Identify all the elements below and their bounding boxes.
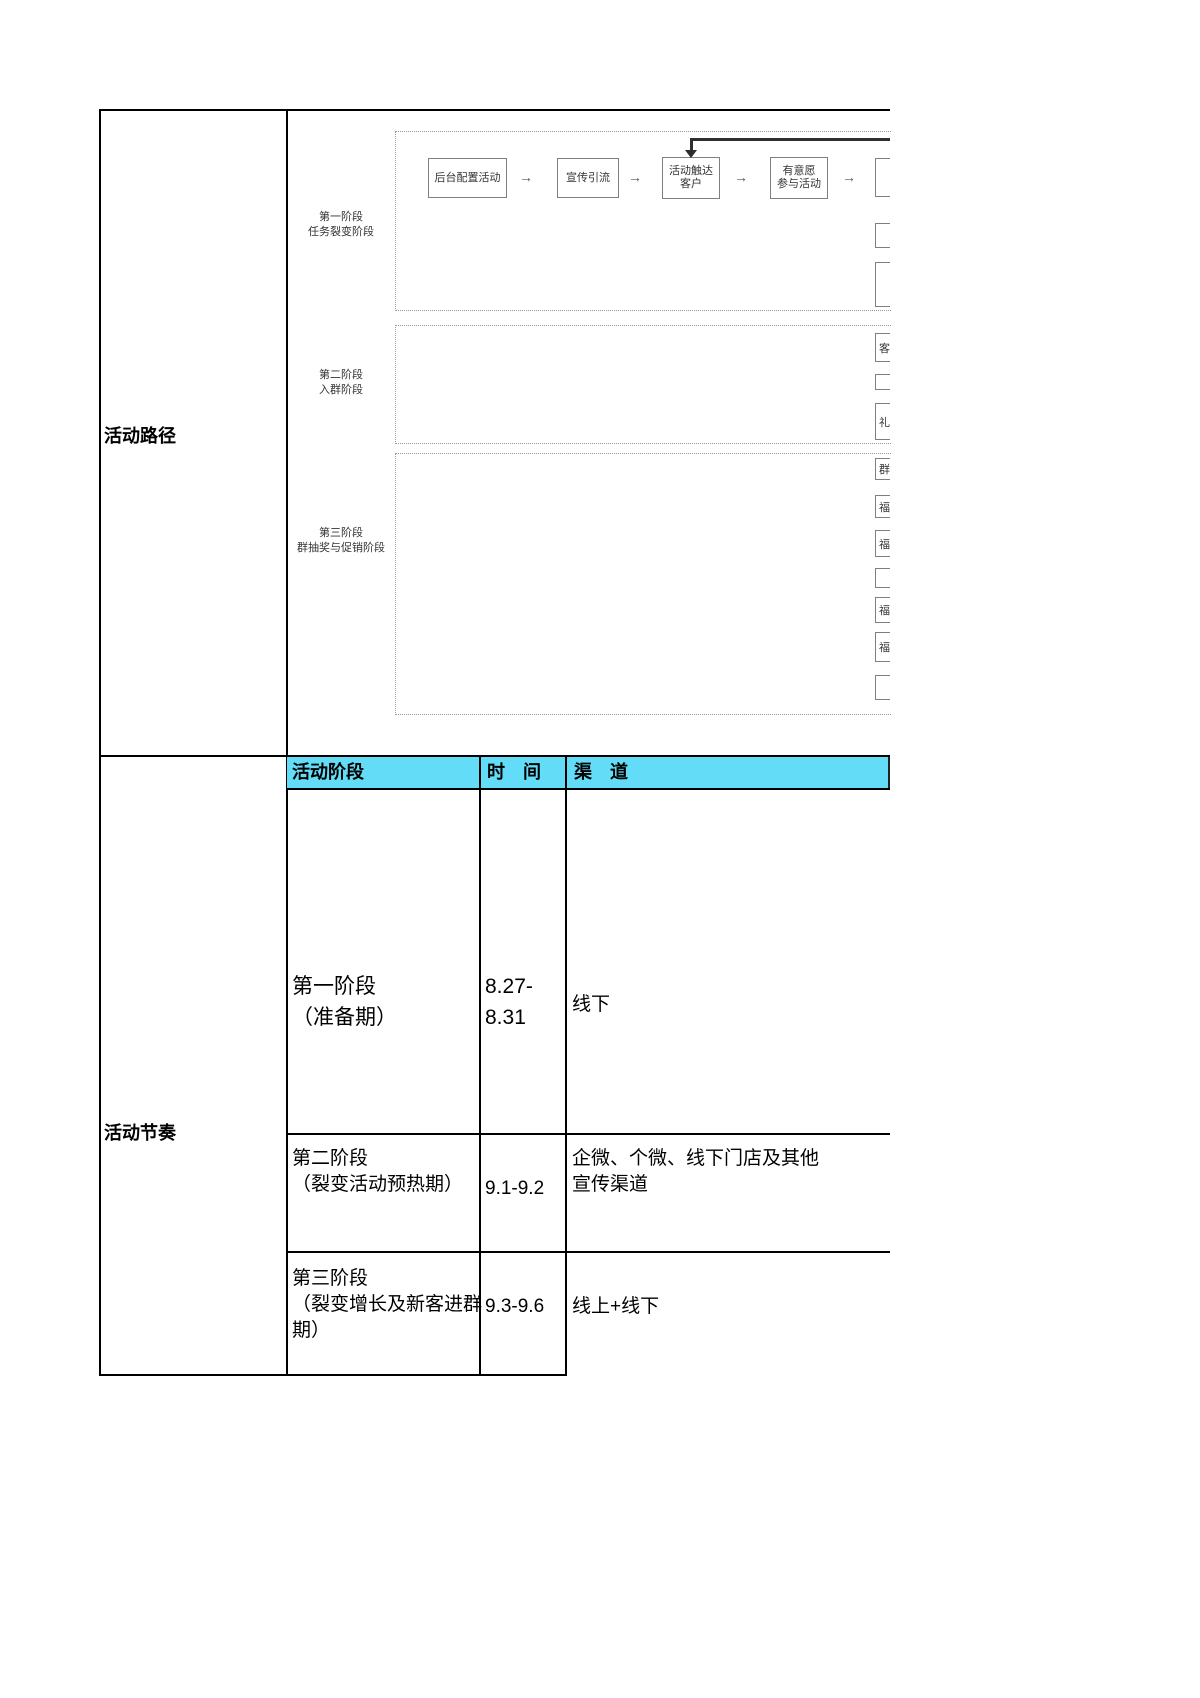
header-cell-channel: 渠 道 <box>574 757 628 788</box>
row1-stage-cell: 第一阶段 （准备期） <box>292 971 397 1033</box>
row2-channel-cell: 企微、个微、线下门店及其他 宣传渠道 <box>572 1146 819 1198</box>
partial-box <box>875 675 890 700</box>
flow-arrow-icon: → <box>734 170 748 184</box>
flow-box-promotion: 宣传引流 <box>557 158 619 198</box>
header-bottom-border <box>287 788 890 790</box>
table-top-border <box>99 109 890 111</box>
table-left-border <box>99 109 101 1376</box>
flow-arrow-icon: → <box>842 170 856 184</box>
row3-stage-cell: 第三阶段 （裂变增长及新客进群 期） <box>292 1266 482 1344</box>
flow-arrow-icon: → <box>628 170 642 184</box>
row2-bottom-border <box>287 1251 890 1253</box>
partial-box: 群 <box>875 458 890 480</box>
row3-channel-cell: 线上+线下 <box>572 1294 659 1320</box>
row2-stage-cell: 第二阶段 （裂变活动预热期） <box>292 1146 463 1198</box>
stage3-label: 第三阶段 群抽奖与促销阶段 <box>287 526 395 556</box>
activity-rhythm-label: 活动节奏 <box>104 1119 176 1145</box>
partial-box <box>875 158 890 197</box>
flow-box-willing-participate: 有意愿 参与活动 <box>770 157 828 199</box>
partial-box: 客 <box>875 333 890 362</box>
row1-bottom-border <box>287 1133 890 1135</box>
row2-time-cell: 9.1-9.2 <box>485 1176 544 1202</box>
partial-box: 礼 <box>875 403 890 440</box>
stage2-container <box>395 325 891 444</box>
row3-bottom-border <box>99 1374 566 1376</box>
flow-box-configure: 后台配置活动 <box>428 158 507 198</box>
header-cut-edge <box>888 757 890 788</box>
partial-box: 福 <box>875 495 890 518</box>
spreadsheet-crop: 活动路径 第一阶段 任务裂变阶段 第二阶段 入群阶段 第三阶段 群抽奖与促销阶段… <box>0 0 1200 1698</box>
partial-box <box>875 568 890 588</box>
partial-box: 福 <box>875 530 890 557</box>
row1-time-cell: 8.27- 8.31 <box>485 971 533 1033</box>
stage3-container <box>395 453 891 715</box>
flow-arrow-icon: → <box>519 170 533 184</box>
partial-box <box>875 262 890 307</box>
feedback-arrow-line <box>690 138 890 141</box>
partial-box <box>875 374 890 390</box>
channel-column-divider <box>565 755 567 1376</box>
flow-box-reach-customer: 活动触达 客户 <box>662 157 720 199</box>
stage1-label: 第一阶段 任务裂变阶段 <box>287 210 395 240</box>
arrow-down-icon <box>685 150 697 158</box>
stage2-label: 第二阶段 入群阶段 <box>287 368 395 398</box>
header-cell-time: 时 间 <box>487 757 541 788</box>
label-column-divider <box>286 109 288 1376</box>
row3-time-cell: 9.3-9.6 <box>485 1294 544 1320</box>
partial-box: 福 <box>875 632 890 662</box>
header-cell-stage: 活动阶段 <box>292 757 364 788</box>
partial-box: 福 <box>875 597 890 623</box>
partial-box <box>875 223 890 248</box>
row1-channel-cell: 线下 <box>572 992 610 1018</box>
activity-path-label: 活动路径 <box>104 422 176 448</box>
